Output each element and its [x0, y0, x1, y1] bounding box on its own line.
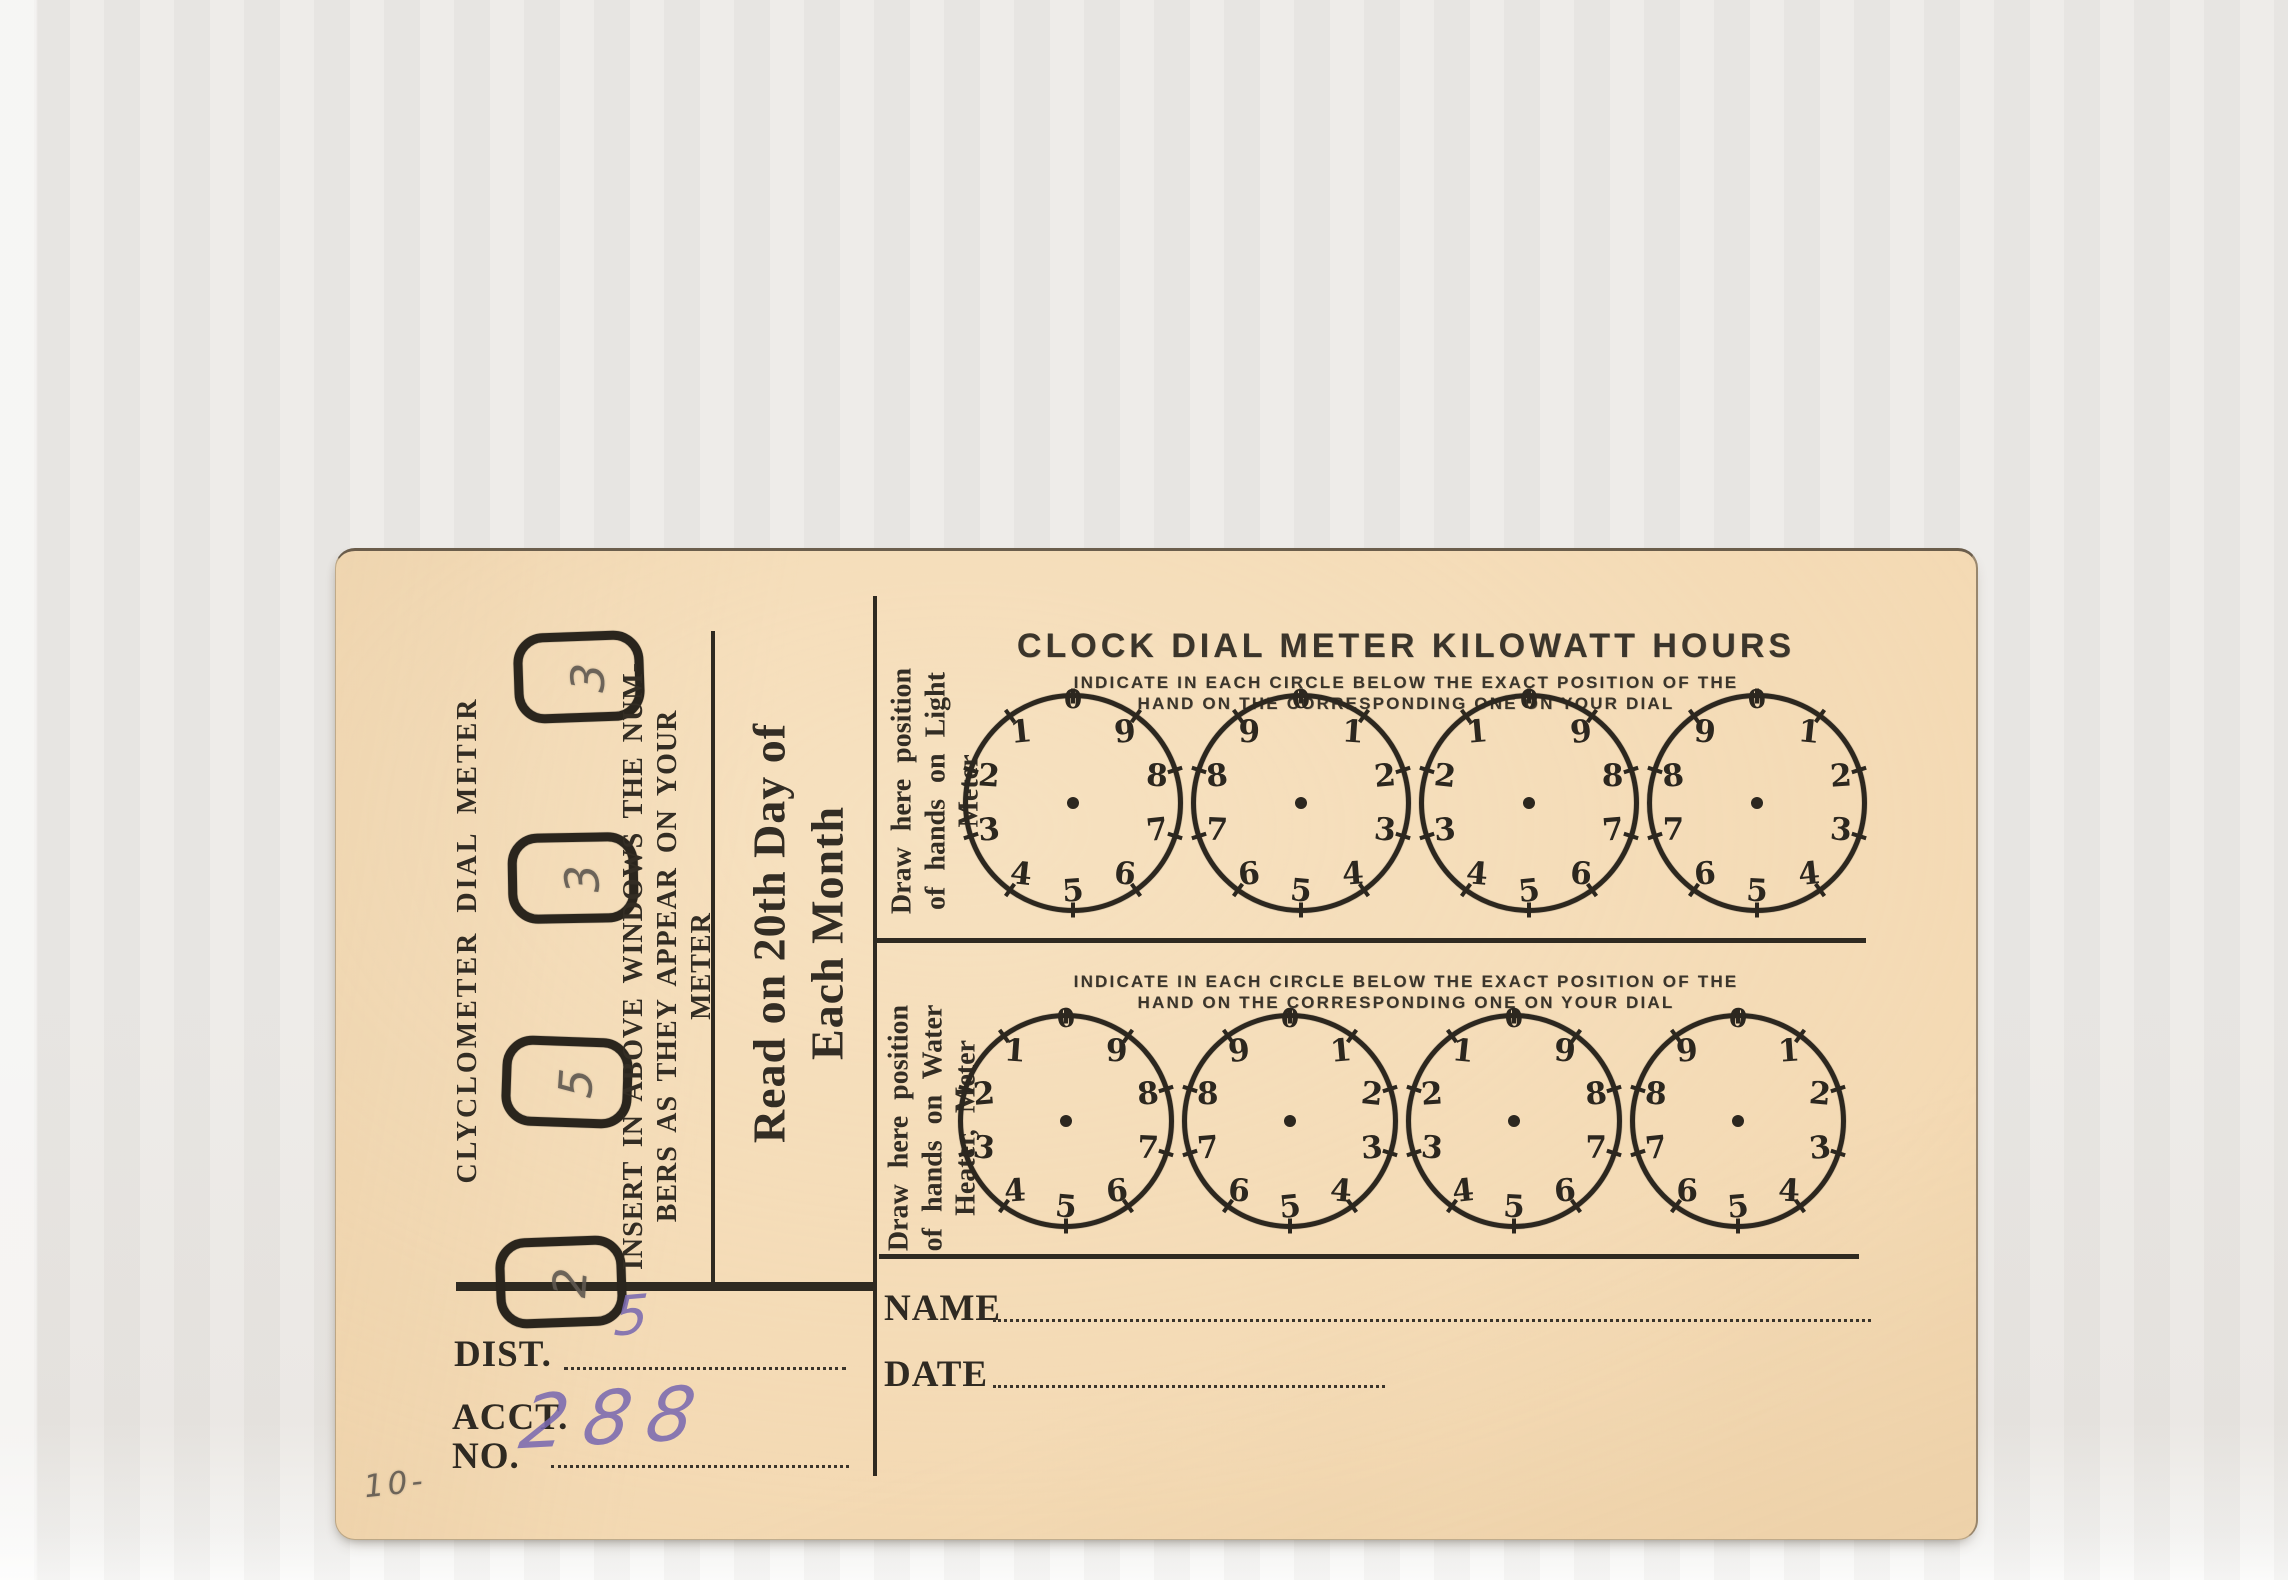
meter-dial-row1-2-cw: 0123456789: [1191, 693, 1411, 913]
date-label: DATE: [884, 1353, 988, 1396]
dial-digit-0: 0: [1519, 684, 1539, 715]
dial-digit-3: 3: [1828, 811, 1853, 849]
dial-center-dot: [1523, 797, 1535, 809]
dial-digit-9: 9: [1693, 713, 1717, 750]
dial-tick: [963, 832, 979, 840]
dial-digit-0: 0: [1280, 1004, 1300, 1035]
dial-tick: [1419, 832, 1435, 840]
dial-tick: [1191, 832, 1207, 840]
name-line: [993, 1291, 1871, 1322]
dial-tick: [1395, 766, 1411, 774]
dial-tick: [1395, 832, 1411, 840]
dial-digit-9: 9: [1675, 1032, 1700, 1070]
dial-tick: [1419, 766, 1435, 774]
dial-digit-8: 8: [1584, 1075, 1609, 1113]
dial-tick: [1182, 1084, 1198, 1092]
dial-tick: [1606, 1149, 1622, 1157]
dial-digit-3: 3: [977, 811, 1002, 849]
dial-tick: [1851, 832, 1867, 840]
meter-dial-row2-3-ccw: 0123456789: [1406, 1013, 1622, 1229]
dial-digit-4: 4: [1341, 855, 1365, 892]
dial-digit-0: 0: [1504, 1004, 1525, 1035]
meter-dial-row2-2-cw: 0123456789: [1182, 1013, 1398, 1229]
dial-digit-8: 8: [1205, 757, 1230, 795]
dial-digit-7: 7: [1144, 811, 1169, 849]
meter-dial-row2-4-cw: 0123456789: [1630, 1013, 1846, 1229]
dial-center-dot: [1508, 1115, 1520, 1127]
dial-digit-1: 1: [1009, 713, 1034, 751]
dial-digit-3: 3: [1372, 811, 1397, 849]
dial-tick: [1406, 1084, 1422, 1092]
dial-tick: [1623, 766, 1639, 774]
dial-digit-7: 7: [1136, 1129, 1159, 1166]
dial-digit-5: 5: [1277, 1188, 1302, 1226]
clock-dials-layer: 0123456789012345678901234567890123456789…: [336, 551, 1976, 1539]
dial-digit-2: 2: [1372, 757, 1397, 795]
dial-digit-8: 8: [1644, 1076, 1668, 1113]
dial-digit-1: 1: [1328, 1032, 1353, 1070]
dial-tick: [1158, 1084, 1174, 1092]
dial-digit-7: 7: [1196, 1129, 1221, 1167]
meter-dial-row1-1-ccw: 0123456789: [963, 693, 1183, 913]
dial-digit-6: 6: [1237, 855, 1262, 893]
dial-tick: [1167, 832, 1183, 840]
dial-tick: [1623, 832, 1639, 840]
dial-digit-5: 5: [1061, 872, 1085, 909]
dial-digit-0: 0: [1727, 1004, 1748, 1036]
dial-tick: [1158, 1149, 1174, 1157]
dial-tick: [1630, 1149, 1646, 1157]
dial-tick: [1630, 1084, 1646, 1092]
dial-digit-9: 9: [1238, 714, 1260, 750]
dial-digit-1: 1: [1003, 1032, 1027, 1069]
dial-digit-3: 3: [1808, 1129, 1833, 1167]
dial-digit-0: 0: [1055, 1004, 1076, 1036]
dial-digit-5: 5: [1516, 872, 1541, 910]
dial-digit-4: 4: [1796, 855, 1821, 893]
dial-tick: [1830, 1084, 1846, 1092]
dial-digit-3: 3: [1420, 1129, 1445, 1167]
dial-digit-2: 2: [1808, 1075, 1833, 1113]
dial-digit-1: 1: [1465, 713, 1490, 751]
dial-digit-8: 8: [1661, 757, 1686, 795]
dial-center-dot: [1067, 797, 1079, 809]
dial-digit-6: 6: [1112, 855, 1137, 893]
dial-digit-8: 8: [1145, 757, 1168, 794]
dial-digit-9: 9: [1568, 713, 1593, 751]
dial-tick: [963, 766, 979, 774]
dial-digit-2: 2: [977, 757, 1001, 794]
meter-dial-row2-1-ccw: 0123456789: [958, 1013, 1174, 1229]
dial-center-dot: [1284, 1115, 1296, 1127]
dial-tick: [1606, 1084, 1622, 1092]
dial-digit-6: 6: [1227, 1172, 1250, 1209]
dial-digit-2: 2: [1829, 757, 1853, 794]
dial-digit-2: 2: [1420, 1076, 1444, 1113]
dial-digit-4: 4: [1328, 1172, 1353, 1210]
dial-digit-6: 6: [1552, 1172, 1577, 1210]
dial-center-dot: [1295, 797, 1307, 809]
dial-digit-9: 9: [1112, 713, 1137, 751]
dial-digit-2: 2: [1433, 757, 1458, 795]
meter-reading-card: CLYCLOMETER DIAL METER 3 3 5 2 INSERT IN…: [335, 548, 1978, 1540]
dial-digit-7: 7: [1206, 812, 1229, 849]
dial-digit-8: 8: [1602, 758, 1624, 794]
dial-digit-3: 3: [971, 1129, 996, 1167]
dial-digit-5: 5: [1745, 872, 1768, 909]
dial-digit-0: 0: [1290, 684, 1311, 716]
dial-digit-2: 2: [1360, 1075, 1385, 1113]
dial-center-dot: [1060, 1115, 1072, 1127]
dial-tick: [1830, 1149, 1846, 1157]
dial-tick: [1851, 766, 1867, 774]
dial-digit-4: 4: [1003, 1172, 1027, 1209]
dial-digit-8: 8: [1136, 1075, 1161, 1113]
date-line: [993, 1357, 1385, 1388]
dial-digit-9: 9: [1553, 1032, 1577, 1069]
dial-digit-8: 8: [1197, 1076, 1219, 1112]
dial-digit-5: 5: [1289, 872, 1314, 910]
dial-digit-0: 0: [1747, 684, 1768, 715]
dial-digit-1: 1: [1777, 1032, 1801, 1069]
meter-dial-row1-4-cw: 0123456789: [1647, 693, 1867, 913]
dial-digit-9: 9: [1227, 1032, 1252, 1070]
dial-tick: [1182, 1149, 1198, 1157]
dial-digit-6: 6: [1676, 1173, 1698, 1209]
dial-digit-5: 5: [1502, 1189, 1525, 1226]
dial-digit-4: 4: [1451, 1172, 1476, 1210]
dial-digit-4: 4: [1777, 1172, 1800, 1209]
dial-center-dot: [1751, 797, 1763, 809]
dial-digit-1: 1: [1451, 1032, 1476, 1070]
dial-digit-1: 1: [1796, 713, 1821, 751]
dial-digit-6: 6: [1104, 1172, 1129, 1210]
dial-digit-7: 7: [1663, 812, 1685, 848]
name-label: NAME: [884, 1287, 1001, 1330]
dial-digit-0: 0: [1064, 685, 1082, 715]
meter-dial-row1-3-ccw: 0123456789: [1419, 693, 1639, 913]
dial-digit-2: 2: [972, 1075, 997, 1113]
dial-digit-1: 1: [1341, 713, 1365, 750]
dial-tick: [1382, 1149, 1398, 1157]
dial-digit-3: 3: [1360, 1129, 1384, 1166]
dial-digit-7: 7: [1643, 1129, 1668, 1167]
dial-digit-5: 5: [1726, 1189, 1751, 1227]
photo-backdrop: CLYCLOMETER DIAL METER 3 3 5 2 INSERT IN…: [0, 0, 2288, 1580]
dial-tick: [1647, 832, 1663, 840]
dial-digit-7: 7: [1585, 1130, 1607, 1166]
dial-digit-6: 6: [1693, 855, 1718, 893]
dial-digit-9: 9: [1106, 1033, 1128, 1069]
dial-tick: [1382, 1084, 1398, 1092]
dial-digit-7: 7: [1600, 811, 1625, 849]
dial-digit-5: 5: [1054, 1189, 1079, 1227]
dial-digit-4: 4: [1009, 855, 1034, 893]
dial-tick: [1167, 766, 1183, 774]
dial-digit-3: 3: [1433, 811, 1457, 848]
dial-center-dot: [1732, 1115, 1744, 1127]
dial-digit-4: 4: [1465, 855, 1490, 893]
dial-digit-6: 6: [1569, 856, 1592, 893]
